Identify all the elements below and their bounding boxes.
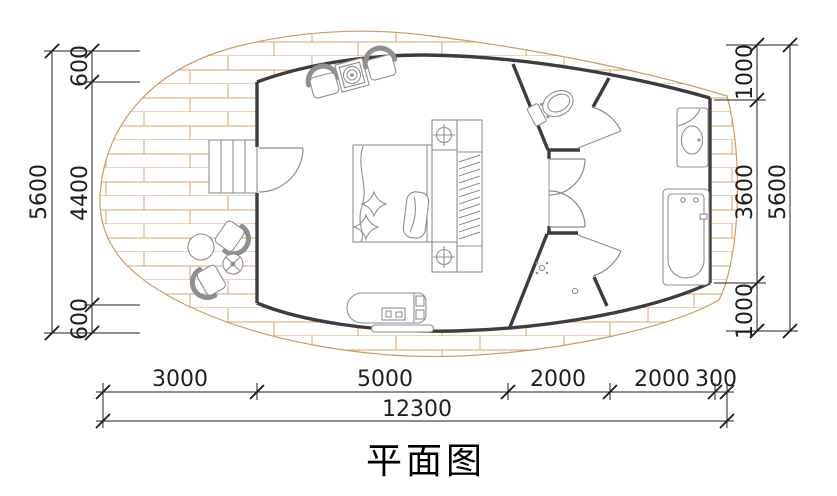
dim-label-bottom-seg1: 5000: [357, 367, 413, 392]
dim-label-right-seg2: 1000: [733, 283, 758, 339]
wardrobe: [457, 120, 482, 272]
dim-label-bottom-overall: 12300: [382, 397, 452, 422]
dim-label-left-overall: 5600: [27, 164, 52, 220]
nightstand-bottom: [432, 242, 457, 272]
dim-label-left-seg1: 4400: [68, 165, 93, 221]
chaise-step: [372, 325, 434, 332]
floor-plan-canvas: 5600 600 4400 600 1000 3600 1000 5600 30…: [0, 0, 837, 496]
deck-round-table: [188, 234, 214, 260]
bed-group: [353, 145, 432, 242]
dim-label-right-seg0: 1000: [733, 44, 758, 100]
dim-bottom: 3000 5000 2000 2000 300 12300: [96, 367, 737, 428]
nightstand-top: [432, 120, 457, 150]
plan-title: 平面图: [366, 441, 486, 482]
bathtub-outline: [663, 189, 709, 285]
dim-label-right-seg1: 3600: [733, 164, 758, 220]
entry-steps: [209, 140, 257, 193]
washbasin-icon: [677, 108, 708, 167]
dim-label-bottom-seg4: 300: [695, 367, 737, 392]
dim-label-left-seg2: 600: [68, 298, 93, 340]
dim-label-bottom-seg3: 2000: [634, 367, 690, 392]
floor-plan-page: 5600 600 4400 600 1000 3600 1000 5600 30…: [0, 0, 837, 496]
basin-tap: [697, 138, 700, 141]
bathtub-icon: [663, 189, 709, 285]
deck-plant-icon: [223, 254, 243, 274]
dim-label-bottom-seg2: 2000: [530, 367, 586, 392]
dim-label-bottom-seg0: 3000: [152, 367, 208, 392]
dim-label-right-overall: 5600: [766, 164, 791, 220]
dim-label-left-seg0: 600: [68, 45, 93, 87]
